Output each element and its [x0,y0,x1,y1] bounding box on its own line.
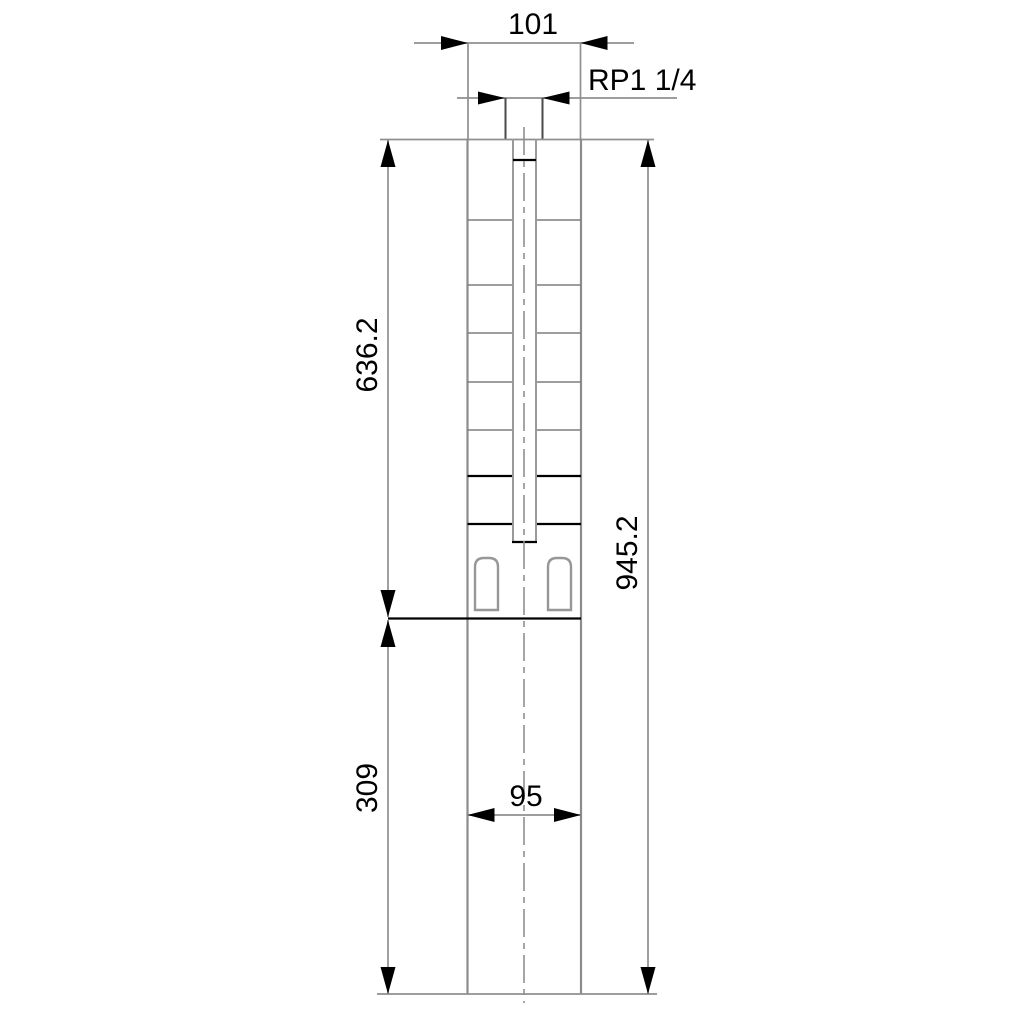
dimension-width-top-label: 101 [508,8,558,41]
arrowhead-down-icon [381,590,396,617]
arrowhead-left-icon [543,92,570,105]
dimension-length-total-label: 945.2 [611,515,644,590]
dimension-length-upper-label: 636.2 [351,317,384,392]
dimension-thread-label: RP1 1/4 [588,64,696,97]
arrowhead-left-icon [581,36,608,50]
arrowhead-right-icon [478,92,505,105]
arrowhead-down-icon [641,967,656,994]
arrowhead-right-icon [441,36,468,50]
arrowhead-down-icon [381,967,396,994]
technical-drawing-canvas: 101 RP1 1/4 [0,0,1024,1024]
dimension-length-lower: 309 [351,620,396,994]
inlet-slot-left [475,558,498,610]
dimension-width-lower: 95 [468,780,582,822]
inlet-slot-right [548,558,571,610]
dimension-length-upper: 636.2 [351,140,396,617]
arrowhead-right-icon [554,808,581,822]
pump-body [388,139,581,994]
dimension-width-lower-label: 95 [509,780,542,813]
pump-dimension-drawing: 101 RP1 1/4 [0,0,1024,1024]
arrowhead-up-icon [381,140,396,167]
arrowhead-up-icon [381,620,396,647]
dimension-length-lower-label: 309 [351,763,384,813]
dimension-length-total: 945.2 [611,140,656,994]
dimension-thread: RP1 1/4 [457,64,696,139]
arrowhead-up-icon [641,140,656,167]
inlet-slots [475,558,571,610]
arrowhead-left-icon [468,808,495,822]
